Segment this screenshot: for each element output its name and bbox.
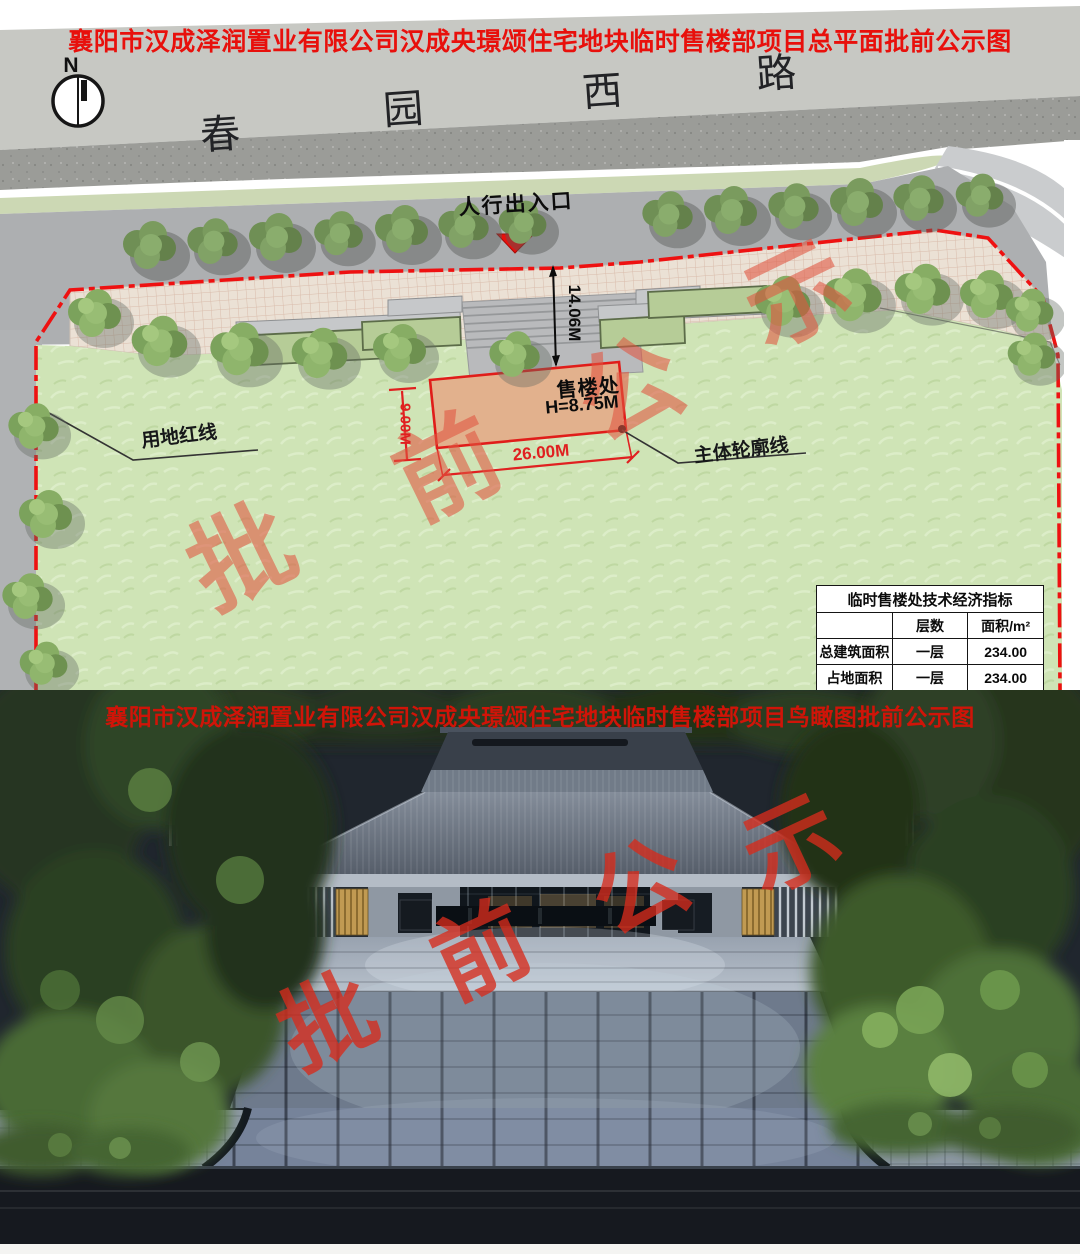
table-row: 占地面积 一层 234.00 — [817, 665, 1044, 691]
aerial-render-panel: 批 前 公 示 襄阳市汉成泽润置业有限公司汉成央璟颂住宅地块临时售楼部项目鸟瞰图… — [0, 690, 1080, 1254]
right-tree-mass — [780, 690, 1080, 1165]
gold-lattice-panel-left — [336, 889, 368, 935]
spec-col-floors: 层数 — [892, 613, 968, 639]
spec-cell: 234.00 — [968, 639, 1044, 665]
road-name-char: 春 — [198, 101, 242, 162]
spec-table: 临时售楼处技术经济指标 层数 面积/m² 总建筑面积 一层 234.00 占地面… — [816, 585, 1044, 690]
spec-cell: 一层 — [892, 639, 968, 665]
page-margin — [1064, 140, 1080, 690]
road-name-char: 西 — [580, 58, 624, 119]
spec-table-title: 临时售楼处技术经济指标 — [817, 586, 1044, 613]
table-row: 总建筑面积 一层 234.00 — [817, 639, 1044, 665]
north-compass-icon — [53, 76, 103, 126]
aerial-render-title: 襄阳市汉成泽润置业有限公司汉成央璟颂住宅地块临时售楼部项目鸟瞰图批前公示图 — [0, 698, 1080, 732]
public-notice-image: 批 前 公 示 襄阳市汉成泽润置业有限公司汉成央璟颂住宅地块临时售楼部项目总平面… — [0, 0, 1080, 1254]
compass-n-label: N — [63, 54, 78, 78]
spec-cell — [817, 613, 893, 639]
road-name-char: 园 — [381, 76, 425, 137]
spec-cell: 总建筑面积 — [817, 639, 893, 665]
gold-lattice-panel-right — [742, 889, 774, 935]
site-plan-title: 襄阳市汉成泽润置业有限公司汉成央璟颂住宅地块临时售楼部项目总平面批前公示图 — [0, 22, 1080, 58]
aerial-render-graphic — [0, 690, 1080, 1254]
spec-cell: 一层 — [892, 665, 968, 691]
spec-col-area: 面积/m² — [968, 613, 1044, 639]
site-plan-panel: 批 前 公 示 襄阳市汉成泽润置业有限公司汉成央璟颂住宅地块临时售楼部项目总平面… — [0, 0, 1080, 690]
dimension-side-label: 9.00M — [397, 403, 414, 445]
bottom-road — [0, 1166, 1080, 1254]
spec-cell: 234.00 — [968, 665, 1044, 691]
spec-cell: 占地面积 — [817, 665, 893, 691]
dimension-depth-label: 14.06M — [564, 285, 584, 342]
road-name-char: 路 — [754, 40, 798, 101]
